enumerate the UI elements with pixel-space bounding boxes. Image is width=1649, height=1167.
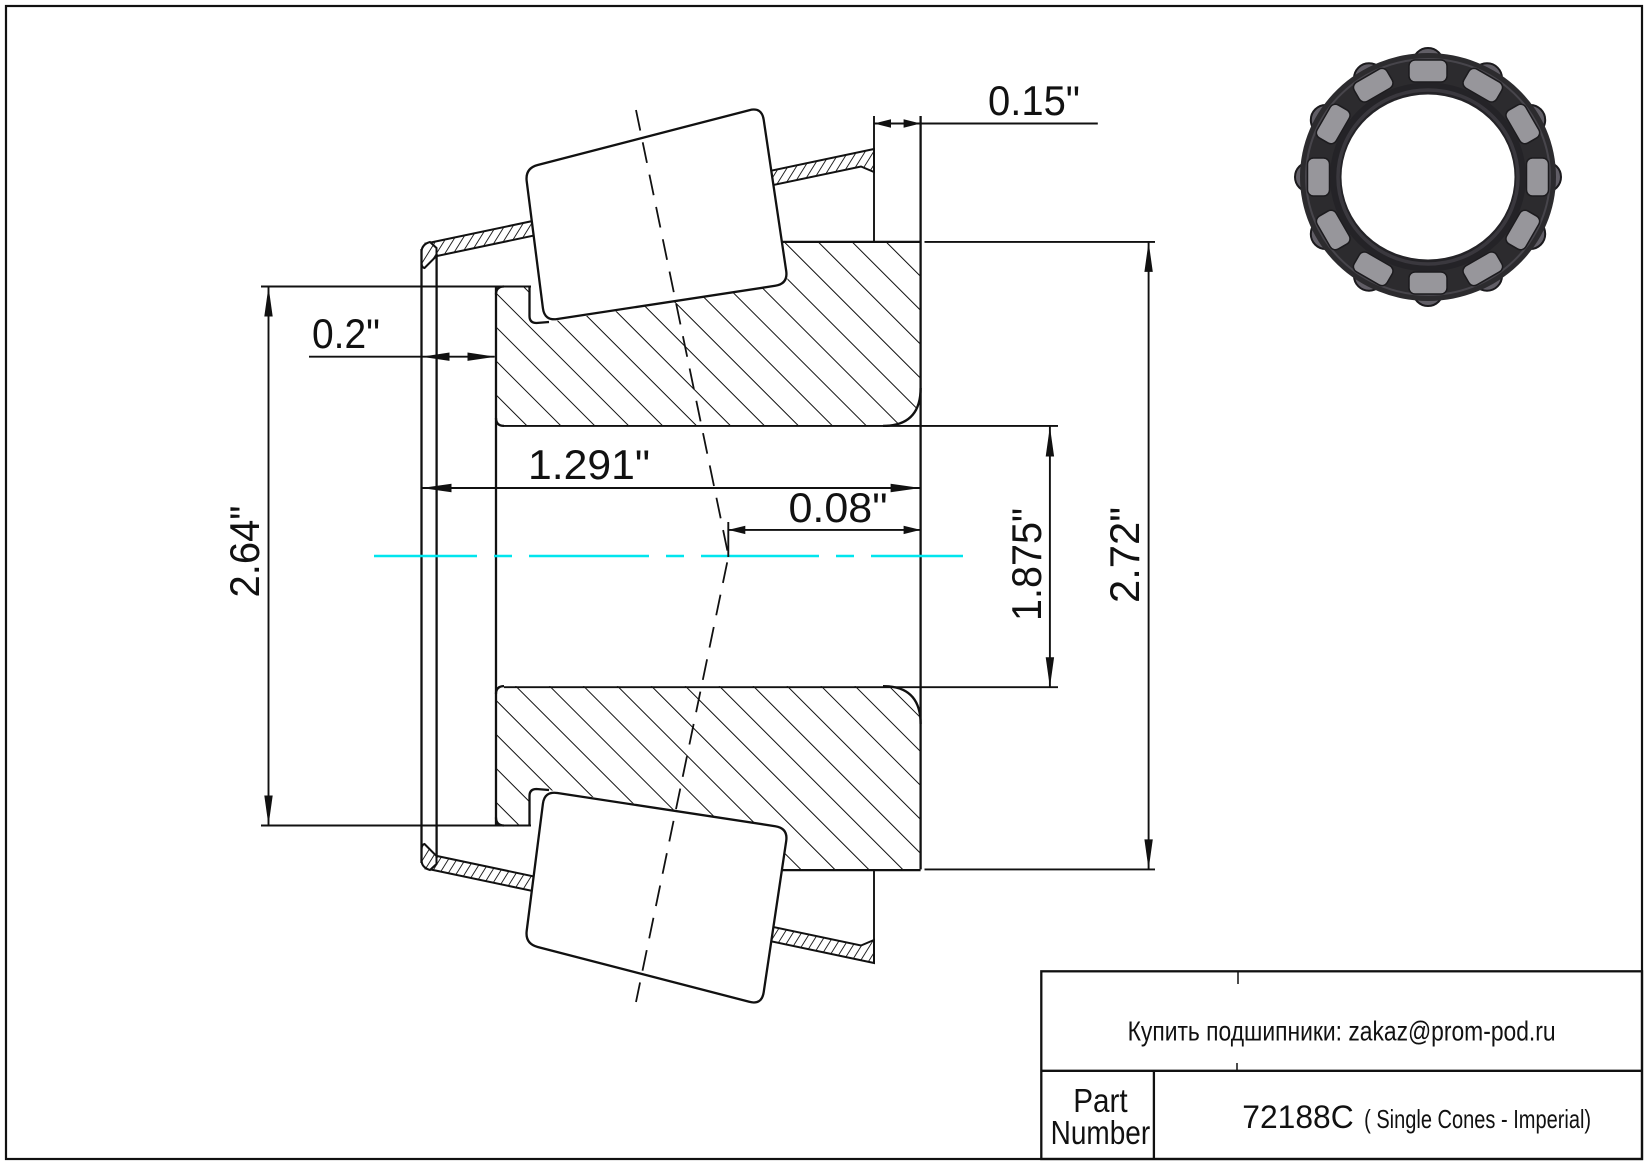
svg-text:1.875": 1.875" [1003, 508, 1050, 621]
svg-text:( Single Cones - Imperial): ( Single Cones - Imperial) [1364, 1104, 1591, 1134]
svg-text:0.08": 0.08" [789, 484, 888, 531]
svg-text:72188C: 72188C [1242, 1099, 1353, 1135]
svg-text:Number: Number [1051, 1114, 1151, 1151]
svg-text:0.2": 0.2" [312, 310, 380, 357]
svg-text:Купить подшипники: zakaz@prom-: Купить подшипники: zakaz@prom-pod.ru [1128, 1016, 1556, 1047]
svg-text:2.72": 2.72" [1101, 507, 1148, 603]
svg-text:0.15": 0.15" [988, 77, 1080, 124]
svg-text:1.291": 1.291" [528, 441, 650, 488]
svg-text:2.64": 2.64" [221, 506, 268, 598]
